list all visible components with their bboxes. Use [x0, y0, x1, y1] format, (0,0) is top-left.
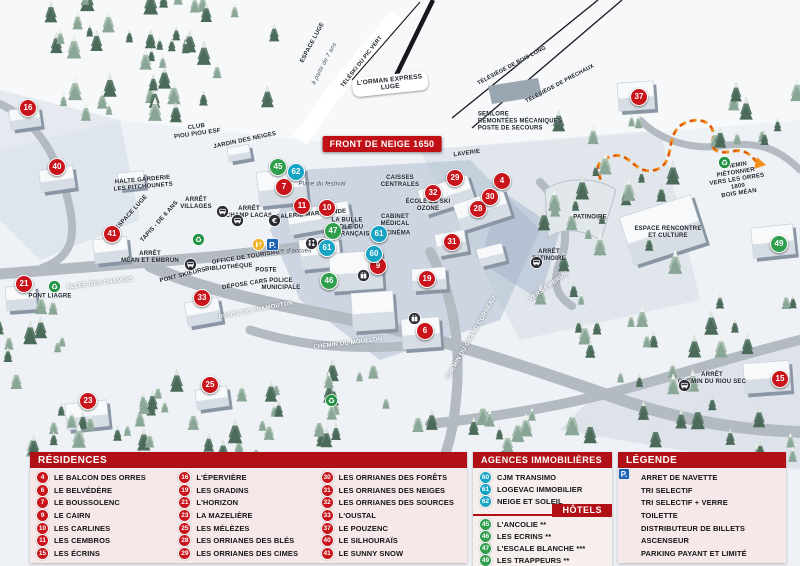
legend-item: 40LE SILHOURAÏS	[321, 535, 463, 547]
marker-number-badge: 41	[321, 547, 334, 560]
marker-number-badge: 15	[36, 547, 49, 560]
map-marker-40: 40	[48, 158, 66, 176]
legend-item-label: LE CAIRN	[54, 511, 90, 520]
legende-column: ARRET DE NAVETTE♻TRI SELECTIFTRI SELECTI…	[624, 471, 782, 560]
legend-item: 16L'ÉPERVIÈRE	[178, 471, 320, 483]
legend-item: TOILETTE	[624, 509, 782, 521]
legend-item: 47L'ESCALE BLANCHE ***	[479, 542, 608, 554]
svg-text:♻: ♻	[51, 282, 58, 291]
marker-number-badge: 4	[36, 471, 49, 484]
legend-item-label: PARKING PAYANT ET LIMITÉ	[641, 549, 747, 558]
legend-item: 33L'OUSTAL	[321, 509, 463, 521]
map-marker-6: 6	[416, 322, 434, 340]
svg-text:♻: ♻	[721, 158, 728, 167]
marker-number-badge: 16	[178, 471, 191, 484]
legende-header: LÉGENDE	[618, 452, 786, 468]
marker-number-badge: 19	[178, 484, 191, 497]
legend-item-label: TRI SELECTIF + VERRE	[641, 498, 728, 507]
marker-number-badge: 23	[178, 509, 191, 522]
map-label: CINÉMA	[386, 231, 411, 238]
marker-number-badge: 25	[178, 522, 191, 535]
legend-item: 31LES ORRIANES DES NEIGES	[321, 484, 463, 496]
map-marker-45: 45	[269, 158, 287, 176]
legend-item: ♻TRI SELECTIF	[624, 484, 782, 496]
map-marker-30: 30	[481, 188, 499, 206]
legend-item: 32LES ORRIANES DES SOURCES	[321, 497, 463, 509]
legend-item-label: L'ÉPERVIÈRE	[196, 473, 246, 482]
marker-number-badge: 49	[479, 554, 492, 566]
marker-number-badge: 7	[36, 496, 49, 509]
marker-number-badge: 45	[479, 518, 492, 531]
map-marker-15: 15	[771, 370, 789, 388]
front-de-neige-banner: FRONT DE NEIGE 1650	[323, 136, 442, 152]
map-marker-25: 25	[201, 376, 219, 394]
map-label: ÉCOLE DE SKI OZONE	[406, 199, 451, 213]
map-label: CABINET MÉDICAL	[381, 214, 410, 228]
svg-text:€: €	[271, 216, 277, 225]
legend-item: 37LE POUZENC	[321, 522, 463, 534]
legend-item: 10LES CARLINES	[36, 522, 178, 534]
legend-item-label: CJM TRANSIMO	[497, 473, 556, 482]
legend-item-label: L'ESCALE BLANCHE ***	[497, 544, 585, 553]
hotels-header: HÔTELS	[552, 504, 612, 517]
svg-text:P.: P.	[621, 470, 627, 479]
marker-number-badge: 37	[321, 522, 334, 535]
legend-item-label: LES ORRIANES DES SOURCES	[339, 498, 454, 507]
legend-item-label: LES CARLINES	[54, 524, 110, 533]
map-marker-41: 41	[103, 225, 121, 243]
legend-item-label: LES ÉCRINS	[54, 549, 100, 558]
marker-number-badge: 28	[178, 534, 191, 547]
legend-item: 21L'HORIZON	[178, 497, 320, 509]
svg-text:P.: P.	[269, 240, 276, 250]
map-marker-29: 29	[446, 169, 464, 187]
legend-item-label: LE BELVÉDÈRE	[54, 486, 112, 495]
map-label: SEMLORE REMONTÉES MÉCANIQUES POSTE DE SE…	[478, 112, 562, 133]
legend-item: ASCENSEUR	[624, 535, 782, 547]
map-label: ARRÊT VILLAGES	[180, 197, 212, 211]
map-marker-60: 60	[365, 245, 383, 263]
legend-item-label: LES TRAPPEURS **	[497, 556, 569, 565]
legend-item: 30LES ORRIANES DES FORÊTS	[321, 471, 463, 483]
marker-number-badge: 32	[321, 496, 334, 509]
marker-number-badge: 47	[479, 542, 492, 555]
marker-number-badge: 31	[321, 484, 334, 497]
residences-column-1: 4LE BALCON DES ORRES6LE BELVÉDÈRE7LE BOU…	[36, 471, 178, 560]
legend-item: 23LA MAZELIÈRE	[178, 509, 320, 521]
map-marker-47: 47	[324, 222, 342, 240]
legend-item-label: DISTRIBUTEUR DE BILLETS	[641, 524, 745, 533]
marker-number-badge: 10	[36, 522, 49, 535]
legend-item-label: LES ORRIANES DES NEIGES	[339, 486, 446, 495]
map-label: Place du festival	[298, 182, 345, 189]
legend-item: 41LE SUNNY SNOW	[321, 548, 463, 560]
legend-item-label: LE POUZENC	[339, 524, 388, 533]
map-marker-31: 31	[443, 233, 461, 251]
map-marker-11: 11	[293, 197, 311, 215]
legend-item: 4LE BALCON DES ORRES	[36, 471, 178, 483]
map-label: ESPACE RENCONTRE ET CULTURE	[634, 226, 701, 240]
map-marker-7: 7	[275, 178, 293, 196]
legend-item: 60CJM TRANSIMO	[479, 471, 608, 483]
marker-number-badge: 11	[36, 534, 49, 547]
agences-hotels-panel: 60CJM TRANSIMO61LOGEVAC IMMOBILIER62NEIG…	[473, 468, 612, 566]
marker-number-badge: 21	[178, 496, 191, 509]
legend-item: 49LES TRAPPEURS **	[479, 554, 608, 566]
map-label: CAISSES CENTRALES	[381, 175, 419, 189]
legend-item: 61LOGEVAC IMMOBILIER	[479, 483, 608, 495]
marker-number-badge: 33	[321, 509, 334, 522]
map-marker-61: 61	[318, 239, 336, 257]
map-marker-37: 37	[630, 88, 648, 106]
residences-column-2: 16L'ÉPERVIÈRE19LES GRADINS21L'HORIZON23L…	[178, 471, 320, 560]
legend-item: 15LES ÉCRINS	[36, 548, 178, 560]
marker-number-badge: 6	[36, 484, 49, 497]
svg-text:♻: ♻	[328, 396, 335, 405]
map-marker-46: 46	[320, 272, 338, 290]
map-marker-61: 61	[370, 225, 388, 243]
marker-number-badge: 30	[321, 471, 334, 484]
map-marker-23: 23	[79, 392, 97, 410]
legend-item-label: LES GRADINS	[196, 486, 248, 495]
legend-item-label: TOILETTE	[641, 511, 678, 520]
map-label: PATINOIRE	[573, 215, 607, 222]
legend-item-label: LE SUNNY SNOW	[339, 549, 404, 558]
legend-item: 46LES ECRINS **	[479, 530, 608, 542]
legend-item-label: LES CEMBROS	[54, 536, 110, 545]
residences-panel: 4LE BALCON DES ORRES6LE BELVÉDÈRE7LE BOU…	[30, 468, 467, 563]
legend-item-label: L'ANCOLIE **	[497, 520, 546, 529]
marker-number-badge: 9	[36, 509, 49, 522]
marker-number-badge: 60	[479, 471, 492, 484]
legend-item-label: LE BALCON DES ORRES	[54, 473, 146, 482]
map-marker-16: 16	[19, 99, 37, 117]
legend-item-label: LES ECRINS **	[497, 532, 551, 541]
legend-item: 6LE BELVÉDÈRE	[36, 484, 178, 496]
map-marker-33: 33	[193, 289, 211, 307]
legend-item-label: TRI SELECTIF	[641, 486, 693, 495]
map-marker-62: 62	[287, 163, 305, 181]
map-marker-19: 19	[418, 270, 436, 288]
marker-number-badge: 29	[178, 547, 191, 560]
marker-number-badge: 62	[479, 495, 492, 508]
legend-item-label: LES ORRIANES DES FORÊTS	[339, 473, 448, 482]
legend-item: 28LES ORRIANES DES BLÉS	[178, 535, 320, 547]
map-label: POLICE MUNICIPALE	[262, 278, 301, 292]
legend-item-label: LE BOUSSOLENC	[54, 498, 120, 507]
residences-column-3: 30LES ORRIANES DES FORÊTS31LES ORRIANES …	[321, 471, 463, 560]
legend-item: 25LES MÉLÈZES	[178, 522, 320, 534]
map-marker-32: 32	[424, 184, 442, 202]
map-marker-4: 4	[493, 172, 511, 190]
legend-item: 45L'ANCOLIE **	[479, 518, 608, 530]
map-label: POSTE	[255, 268, 276, 275]
legend-item: 11LES CEMBROS	[36, 535, 178, 547]
legend-item: TRI SELECTIF + VERRE	[624, 497, 782, 509]
map-label: PONT LIAGRE	[28, 294, 71, 301]
legend-item-label: ASCENSEUR	[641, 536, 689, 545]
legend-item-label: LE SILHOURAÏS	[339, 536, 398, 545]
legend-item-label: L'OUSTAL	[339, 511, 376, 520]
legend-item-label: ARRET DE NAVETTE	[641, 473, 717, 482]
legend-item: ARRET DE NAVETTE	[624, 471, 782, 483]
svg-text:♻: ♻	[195, 235, 202, 244]
legend-item: 19LES GRADINS	[178, 484, 320, 496]
map-marker-21: 21	[15, 275, 33, 293]
legend-item-label: LOGEVAC IMMOBILIER	[497, 485, 582, 494]
legend-item-label: LES ORRIANES DES CIMES	[196, 549, 298, 558]
agences-header: AGENCES IMMOBILIÈRES	[473, 452, 612, 468]
legend-item-label: LA MAZELIÈRE	[196, 511, 252, 520]
map-marker-10: 10	[318, 199, 336, 217]
map-marker-49: 49	[770, 235, 788, 253]
map-label: ARRÊT MÉAN ET EMBRUN	[121, 251, 179, 265]
marker-number-badge: 61	[479, 483, 492, 496]
legend-item: P.PARKING PAYANT ET LIMITÉ	[624, 548, 782, 560]
legend-item: 9LE CAIRN	[36, 509, 178, 521]
legend-item-label: LES MÉLÈZES	[196, 524, 249, 533]
legend-item: €DISTRIBUTEUR DE BILLETS	[624, 522, 782, 534]
legend-item-label: LES ORRIANES DES BLÉS	[196, 536, 294, 545]
legend-item-label: L'HORIZON	[196, 498, 238, 507]
residences-header: RÉSIDENCES	[30, 452, 467, 468]
resort-map-page: CLUB PIOU PIOU ESFJARDIN DES NEIGESHALTE…	[0, 0, 800, 566]
legend-item: 29LES ORRIANES DES CIMES	[178, 548, 320, 560]
legend-item: 7LE BOUSSOLENC	[36, 497, 178, 509]
marker-number-badge: 40	[321, 534, 334, 547]
legende-panel: ARRET DE NAVETTE♻TRI SELECTIFTRI SELECTI…	[618, 468, 786, 563]
marker-number-badge: 46	[479, 530, 492, 543]
